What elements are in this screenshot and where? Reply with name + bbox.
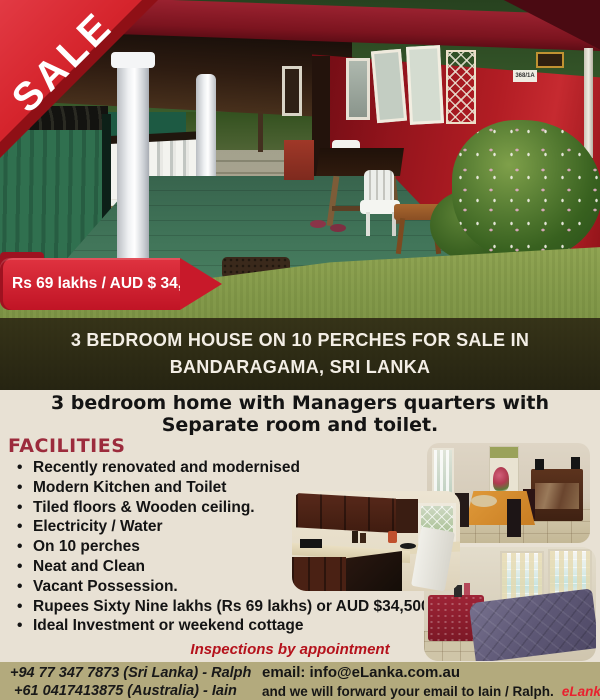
counter-appliance (300, 539, 322, 548)
bottle (352, 531, 358, 543)
facility-item: Rupees Sixty Nine lakhs (Rs 69 lakhs) or… (16, 597, 440, 617)
window-lattice-grill (446, 50, 476, 124)
corner-cabinet (396, 499, 418, 533)
phone-australia: +61 0417413875 (Australia) - Iain (10, 683, 260, 700)
forward-line: and we will forward your email to Iain /… (262, 683, 598, 700)
phone-sri-lanka: +94 77 347 7873 (Sri Lanka) - Ralph (10, 665, 260, 683)
hat-on-table (471, 495, 497, 507)
downpipe (584, 48, 593, 158)
flower-vase (493, 467, 509, 491)
footer-contact-bar: +94 77 347 7873 (Sri Lanka) - Ralph +61 … (0, 662, 600, 700)
casement-window-open (406, 45, 444, 125)
slipper (330, 224, 346, 232)
gold-name-plaque (536, 52, 564, 68)
red-side-table (284, 140, 314, 180)
facility-item: Ideal Investment or weekend cottage (16, 616, 440, 636)
subtitle: 3 bedroom home with Managers quarters wi… (0, 392, 600, 436)
chair-leg (366, 212, 370, 236)
lower-cabinets (292, 557, 346, 591)
upper-cabinets (296, 493, 396, 533)
title-line-2: BANDARAGAMA, SRI LANKA (170, 357, 431, 377)
wooden-display-cabinet (531, 469, 583, 521)
frying-pan (400, 543, 416, 549)
speaker (571, 457, 580, 469)
price-text: Rs 69 lakhs / AUD $ 34,500 (12, 258, 180, 310)
casement-window (346, 58, 370, 120)
kitchen-photo (292, 491, 460, 591)
facility-item: Recently renovated and modernised (16, 458, 440, 478)
speaker (535, 459, 544, 470)
slipper (310, 220, 326, 228)
house-number-sign: 368/1A (513, 70, 537, 82)
small-window (282, 66, 302, 116)
subtitle-line-2: Separate room and toilet. (162, 414, 439, 436)
elanka-brand: eLanka (562, 684, 600, 699)
red-utensil (388, 531, 397, 543)
tree-trunk (258, 108, 263, 152)
footer-phones: +94 77 347 7873 (Sri Lanka) - Ralph +61 … (10, 665, 260, 700)
casement-window-open (371, 49, 407, 123)
email-line: email: info@eLanka.com.au (262, 664, 598, 683)
bottle (360, 533, 366, 543)
footer-email: email: info@eLanka.com.au and we will fo… (262, 664, 598, 700)
subtitle-line-1: 3 bedroom home with Managers quarters wi… (51, 392, 549, 414)
title-line-1: 3 BEDROOM HOUSE ON 10 PERCHES FOR SALE I… (71, 330, 529, 350)
facilities-heading: FACILITIES (8, 435, 125, 457)
quilted-bed (469, 588, 596, 661)
table-ornament (464, 583, 470, 595)
forward-text: and we will forward your email to Iain /… (262, 684, 554, 699)
bush-flowers (452, 120, 600, 260)
title-banner: 3 BEDROOM HOUSE ON 10 PERCHES FOR SALE I… (0, 318, 600, 390)
price-banner: Rs 69 lakhs / AUD $ 34,500 (0, 258, 180, 310)
real-estate-flyer: 368/1A 3 BEDROOM HOUSE ON 10 PERCHES FOR… (0, 0, 600, 700)
dining-chair (507, 499, 521, 537)
